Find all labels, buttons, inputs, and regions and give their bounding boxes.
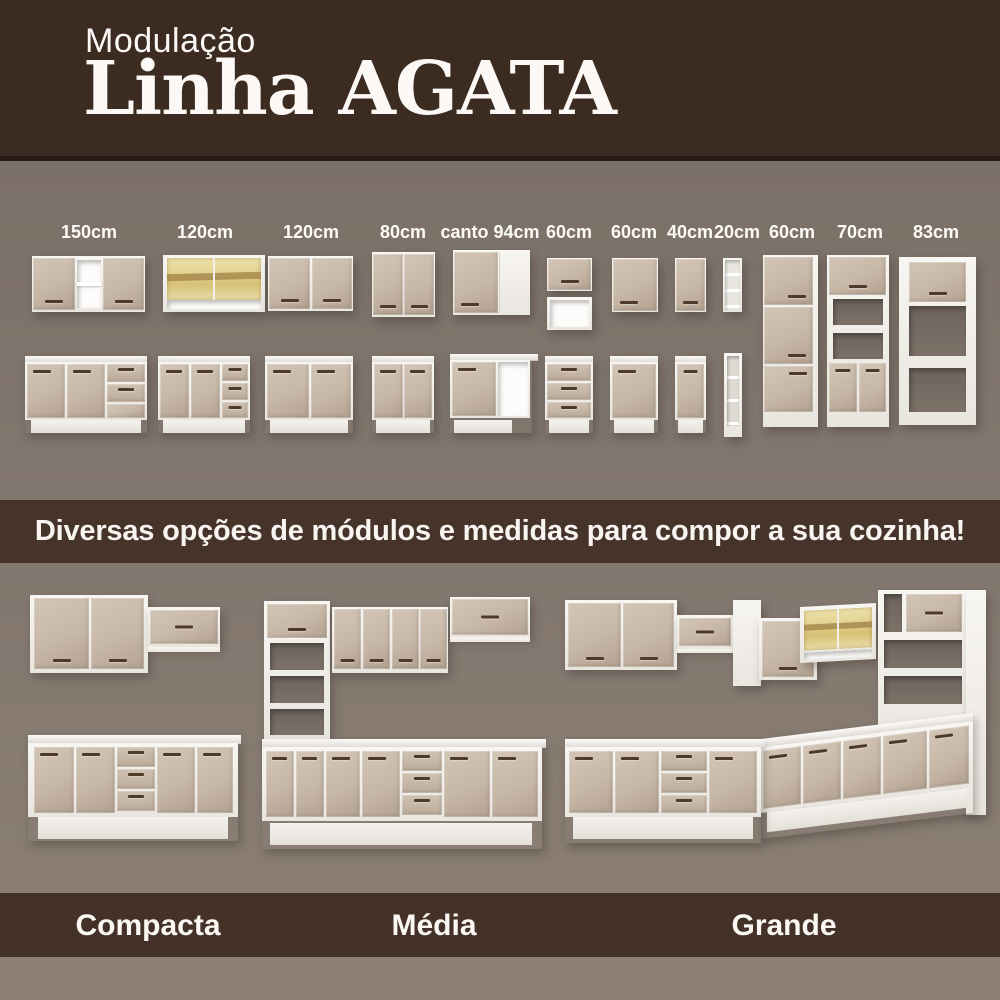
- open-compartment: [270, 676, 324, 703]
- cabinet-door: [392, 609, 419, 669]
- drawer-front: [222, 383, 248, 400]
- open-compartment: [833, 333, 883, 359]
- grande-base-run-front: [565, 739, 761, 843]
- header: Modulação Linha AGATA: [0, 0, 1000, 156]
- base-cabinet-120cm: [265, 356, 353, 433]
- banner-text: Diversas opções de módulos e medidas par…: [35, 515, 965, 548]
- cabinet-door: [492, 751, 538, 817]
- open-compartment: [884, 594, 902, 632]
- tall-frame-83cm: [899, 257, 976, 425]
- drawer-front: [661, 795, 707, 813]
- cabinet-door: [452, 362, 496, 416]
- wall-cabinet-40cm: [675, 258, 706, 312]
- cabinet-door: [374, 364, 403, 418]
- plinth: [614, 420, 654, 433]
- base-cabinet-60cm: [610, 356, 658, 433]
- size-label-83cm: 83cm: [876, 222, 996, 243]
- cabinet-door: [150, 610, 218, 644]
- cabinet-door: [843, 736, 881, 799]
- glass-doors: [167, 258, 261, 300]
- cabinet-body: [158, 362, 250, 420]
- wall-cabinet-120cm-glass: [163, 255, 265, 312]
- cabinet-door: [267, 604, 327, 638]
- drawer-front: [547, 364, 591, 381]
- drawer-front: [117, 791, 155, 811]
- cabinet-door: [444, 751, 490, 817]
- open-compartment: [909, 368, 966, 412]
- plinth: [573, 817, 753, 839]
- cabinet-door: [829, 363, 857, 412]
- cabinet-body: [262, 747, 542, 821]
- base-cabinet-150cm: [25, 356, 147, 433]
- cabinet-door: [34, 747, 74, 813]
- cabinet-door: [296, 751, 324, 817]
- open-corner: [498, 362, 528, 416]
- cabinet-body: [545, 362, 593, 420]
- cabinet-door: [160, 364, 189, 418]
- cabinet-door: [909, 262, 966, 302]
- cabinet-door: [91, 598, 144, 669]
- cabinet-door: [269, 258, 310, 309]
- cabinet-body: [610, 362, 658, 420]
- cabinet-door: [334, 609, 361, 669]
- drawer-front: [402, 751, 442, 771]
- drawer-front: [107, 384, 145, 402]
- cabinet-door: [454, 252, 498, 313]
- cabinet-door: [404, 364, 432, 418]
- corner-filler-panel: [733, 600, 761, 686]
- base-cabinet-120cm-drawers: [158, 356, 250, 433]
- cabinet-bottom-shelf: [167, 300, 261, 309]
- plinth: [31, 420, 141, 433]
- base-cabinet-80cm: [372, 356, 434, 433]
- open-compartment: [270, 709, 324, 735]
- cabinet-door: [548, 259, 591, 290]
- cabinet-door: [312, 258, 352, 309]
- compacta-base-run: [28, 735, 238, 841]
- cabinet-door: [103, 258, 144, 310]
- wall-cabinet-60cm: [612, 258, 658, 312]
- cabinet-door: [34, 598, 89, 669]
- drawer-front: [661, 751, 707, 771]
- drawer-front: [222, 402, 248, 418]
- wall-shelf: [450, 637, 530, 642]
- modules-section: 150cm 120cm 120cm 80cm canto 94cm 60cm 6…: [0, 161, 1000, 500]
- plinth: [678, 420, 703, 433]
- bottom-strip: [0, 957, 1000, 1000]
- door-seam: [837, 609, 839, 649]
- size-label-150cm: 150cm: [29, 222, 149, 243]
- cabinet-door: [612, 364, 656, 418]
- label-grande: Grande: [674, 909, 894, 943]
- open-shelf-20cm: [723, 258, 742, 312]
- cabinet-body: [372, 362, 434, 420]
- cabinet-bottom-shelf: [804, 649, 872, 660]
- banner: Diversas opções de módulos e medidas par…: [0, 500, 1000, 563]
- tall-tower-70cm: [827, 255, 889, 427]
- wall-cabinet-canto-94cm: [453, 250, 530, 315]
- promo-page: Modulação Linha AGATA 150cm 120cm 120cm …: [0, 0, 1000, 1000]
- media-wall-cabinet-raised: [450, 597, 530, 637]
- cabinet-door: [764, 366, 813, 412]
- cabinet-door: [311, 364, 351, 418]
- corner-seam: [499, 252, 500, 313]
- plinth: [549, 420, 589, 433]
- cabinet-door: [420, 609, 447, 669]
- cabinet-door: [764, 257, 813, 305]
- glass-doors: [804, 607, 872, 651]
- cabinet-door: [906, 594, 962, 632]
- plinth: [454, 420, 512, 433]
- cabinet-door: [568, 603, 621, 667]
- grande-wall-cabinet: [565, 600, 677, 670]
- cabinet-body: [25, 362, 147, 420]
- cabinet-body: [28, 743, 238, 817]
- wall-cabinet-150cm: [32, 256, 145, 312]
- cabinet-door: [883, 731, 927, 794]
- drawer-front: [402, 773, 442, 793]
- plinth: [270, 420, 348, 433]
- open-niche: [550, 300, 589, 327]
- plinth: [270, 823, 532, 845]
- cabinet-door: [859, 363, 886, 412]
- cabinet-door: [452, 599, 528, 635]
- open-niche-60cm: [547, 297, 592, 330]
- cabinet-body: [675, 362, 706, 420]
- cabinet-door: [763, 746, 801, 809]
- cabinet-door: [266, 751, 294, 817]
- media-wall-cabinets: [332, 607, 448, 673]
- drawer-front: [402, 795, 442, 815]
- shelf-slot: [727, 356, 739, 426]
- cabinet-door: [615, 751, 659, 813]
- cabinet-door: [326, 751, 360, 817]
- drawer-front: [117, 769, 155, 789]
- open-compartment: [833, 299, 883, 325]
- drawer-front: [547, 383, 591, 400]
- wall-cabinet-120cm: [268, 256, 353, 311]
- door-seam: [213, 258, 215, 300]
- media-base-run: [262, 739, 542, 849]
- compacta-wall-cabinet: [30, 595, 148, 673]
- drawer-front: [107, 364, 145, 382]
- open-tower-20cm: [724, 353, 742, 437]
- cabinet-door: [197, 747, 233, 813]
- drawer-front: [117, 747, 155, 767]
- kitchens-section: [0, 563, 1000, 893]
- cabinet-body: [565, 747, 761, 817]
- cabinet-door: [803, 741, 841, 804]
- open-compartment: [270, 643, 324, 670]
- grande-base-run-right: [761, 713, 973, 839]
- size-label-120cm-a: 120cm: [145, 222, 265, 243]
- open-compartment: [909, 306, 966, 356]
- drawer-front: [661, 773, 707, 793]
- cabinet-door: [363, 609, 390, 669]
- cabinet-door: [33, 258, 75, 310]
- cabinet-door: [27, 364, 65, 418]
- cabinet-door: [829, 257, 886, 295]
- cabinet-door: [613, 259, 657, 311]
- page-title: Linha AGATA: [83, 52, 616, 126]
- label-compacta: Compacta: [38, 909, 258, 943]
- open-compartment: [884, 640, 962, 668]
- plinth: [376, 420, 430, 433]
- cabinet-door: [76, 747, 115, 813]
- cabinet-door: [191, 364, 220, 418]
- cabinet-door: [679, 618, 731, 646]
- shelf: [77, 282, 101, 286]
- cabinet-door: [373, 254, 403, 315]
- wall-shelf: [677, 649, 733, 653]
- grande-glass-wall-cabinet: [800, 603, 876, 663]
- cabinet-door: [157, 747, 195, 813]
- cabinet-door: [404, 254, 434, 315]
- plinth: [163, 420, 245, 433]
- cabinet-door: [107, 404, 145, 418]
- cabinet-door: [677, 364, 704, 418]
- plinth: [38, 817, 228, 839]
- cabinet-door: [676, 259, 705, 311]
- base-cabinet-40cm: [675, 356, 706, 433]
- open-niche: [77, 260, 101, 308]
- label-media: Média: [324, 909, 544, 943]
- wall-cabinet-80cm: [372, 252, 435, 317]
- tall-pantry-60cm: [763, 255, 818, 427]
- cabinet-body: [450, 360, 530, 418]
- base-cabinet-canto-94cm: [450, 354, 532, 433]
- cabinet-door: [623, 603, 674, 667]
- shelf-cubbies: [725, 260, 740, 310]
- wall-shelf: [148, 647, 220, 652]
- cabinet-door: [764, 307, 813, 364]
- wall-cabinet-60cm-low: [547, 258, 592, 291]
- compacta-wall-cabinet-step: [148, 607, 220, 647]
- drawer-front: [547, 402, 591, 418]
- kitchen-labels-band: Compacta Média Grande: [0, 893, 1000, 957]
- drawer-front: [222, 364, 248, 381]
- media-tall-tower: [264, 601, 330, 743]
- cabinet-door: [709, 751, 757, 813]
- cabinet-door: [362, 751, 400, 817]
- cabinet-body: [265, 362, 353, 420]
- cabinet-door: [929, 725, 969, 788]
- base-cabinet-60cm-drawers: [545, 356, 593, 433]
- grande-wall-cabinet-step: [677, 615, 733, 649]
- cabinet-door: [569, 751, 613, 813]
- cabinet-door: [67, 364, 105, 418]
- open-compartment: [884, 676, 962, 704]
- cabinet-door: [267, 364, 309, 418]
